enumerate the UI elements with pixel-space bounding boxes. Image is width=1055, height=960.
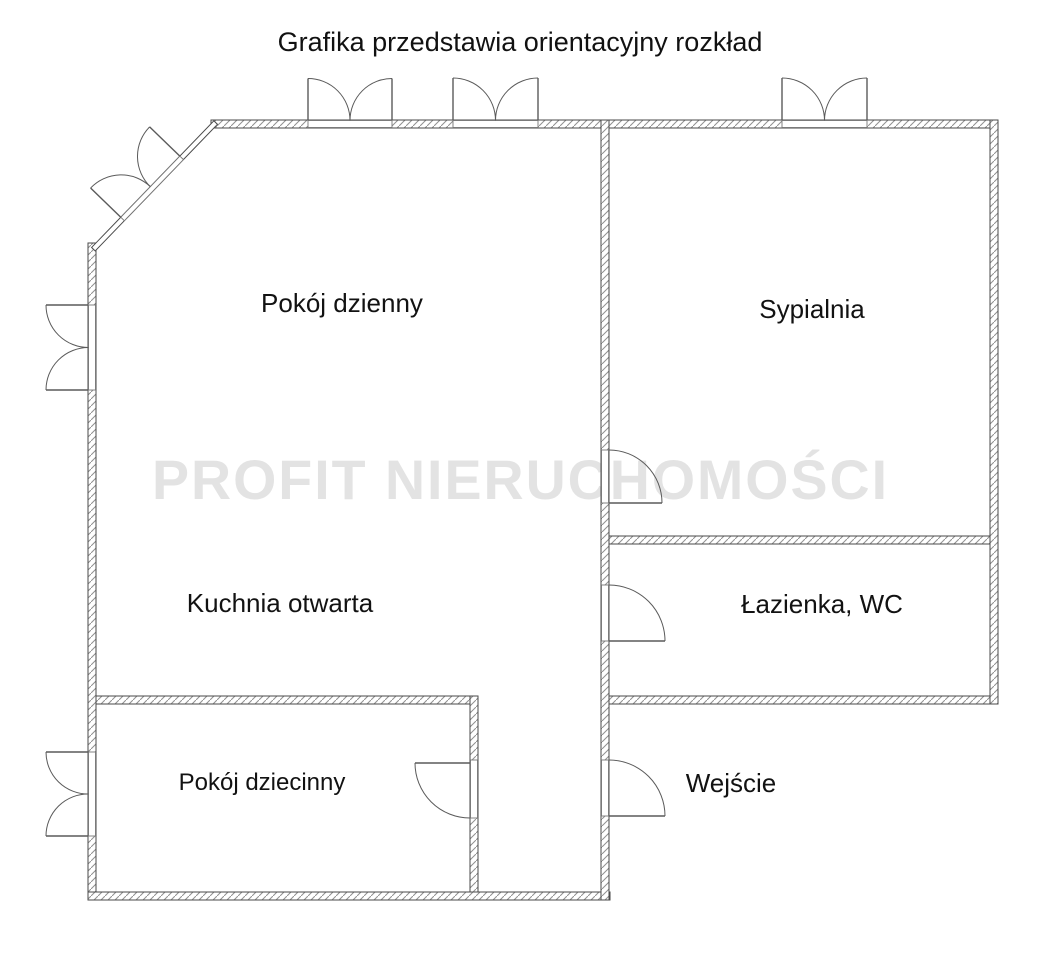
wall-bottom bbox=[88, 892, 610, 900]
entrance-label: Wejście bbox=[686, 768, 777, 798]
wall-right bbox=[990, 120, 998, 704]
door-opening bbox=[602, 760, 609, 816]
door-opening bbox=[602, 585, 609, 641]
floor-plan-page: PROFIT NIERUCHOMOŚCI Grafika przedstawia… bbox=[0, 0, 1055, 960]
window-opening bbox=[89, 752, 96, 836]
plan-title: Grafika przedstawia orientacyjny rozkład bbox=[278, 27, 763, 57]
window-opening bbox=[308, 121, 392, 128]
wall-sypialnia-lazienka bbox=[609, 536, 990, 544]
room-label-lazienka-wc: Łazienka, WC bbox=[741, 589, 903, 619]
wall-lazienka-bottom bbox=[609, 696, 990, 704]
window-opening bbox=[782, 121, 867, 128]
room-label-kuchnia-otwarta: Kuchnia otwarta bbox=[187, 588, 374, 618]
floor-plan-svg: PROFIT NIERUCHOMOŚCI Grafika przedstawia… bbox=[0, 0, 1055, 960]
room-label-sypialnia: Sypialnia bbox=[759, 294, 865, 324]
door-opening bbox=[471, 760, 478, 818]
window-opening bbox=[89, 305, 96, 390]
door-opening bbox=[602, 450, 609, 503]
window-opening bbox=[453, 121, 538, 128]
room-label-pokoj-dziecinny: Pokój dziecinny bbox=[179, 769, 346, 796]
room-label-pokoj-dzienny: Pokój dzienny bbox=[261, 288, 423, 318]
wall-child-top bbox=[96, 696, 478, 704]
watermark-text: PROFIT NIERUCHOMOŚCI bbox=[152, 448, 889, 511]
